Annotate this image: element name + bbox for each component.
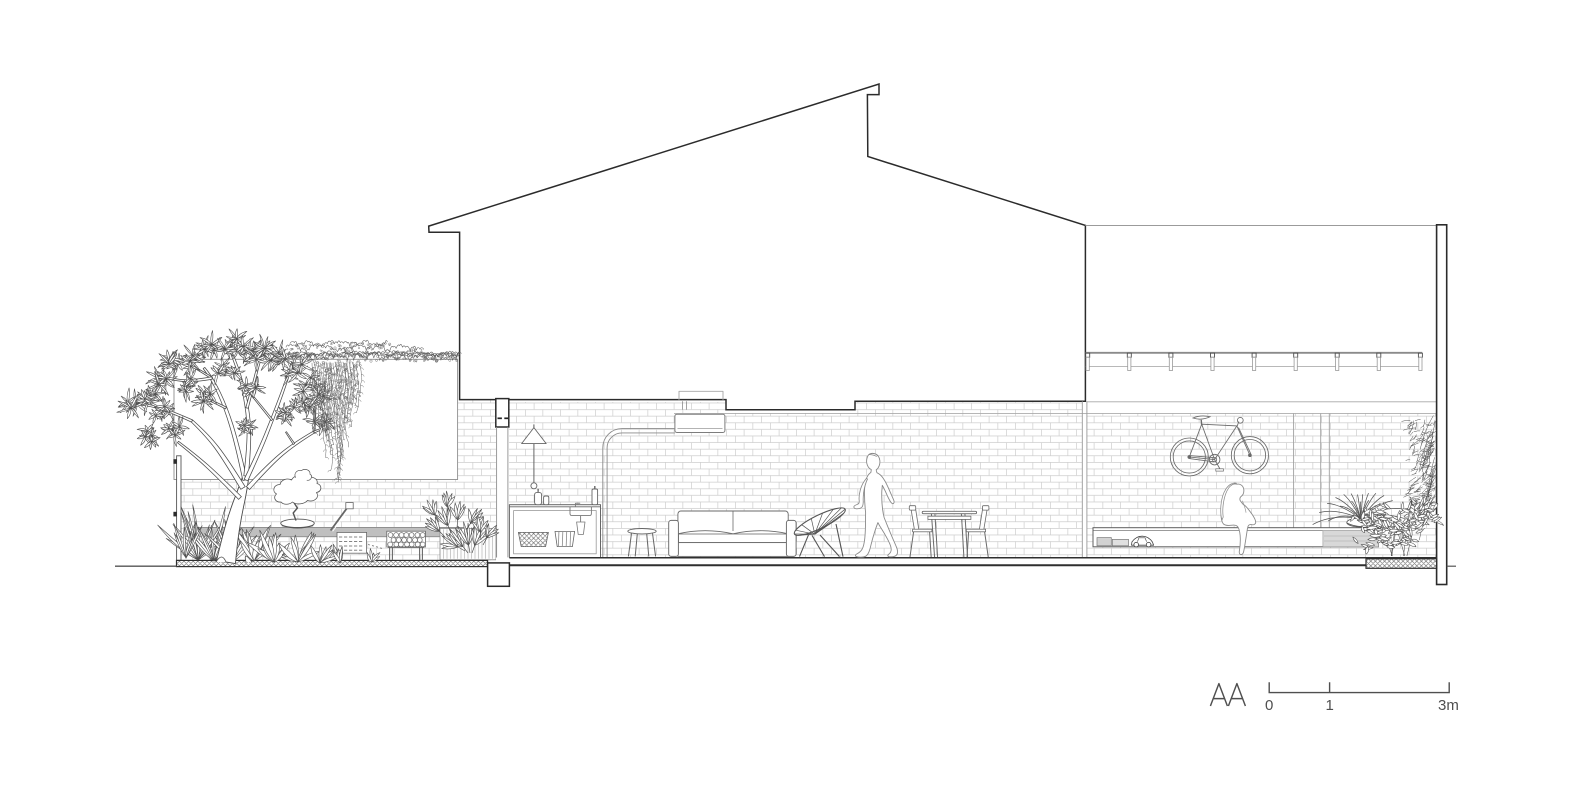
svg-text:1: 1: [1326, 697, 1334, 714]
svg-text:0: 0: [1265, 697, 1273, 714]
svg-text:3m: 3m: [1438, 697, 1459, 714]
